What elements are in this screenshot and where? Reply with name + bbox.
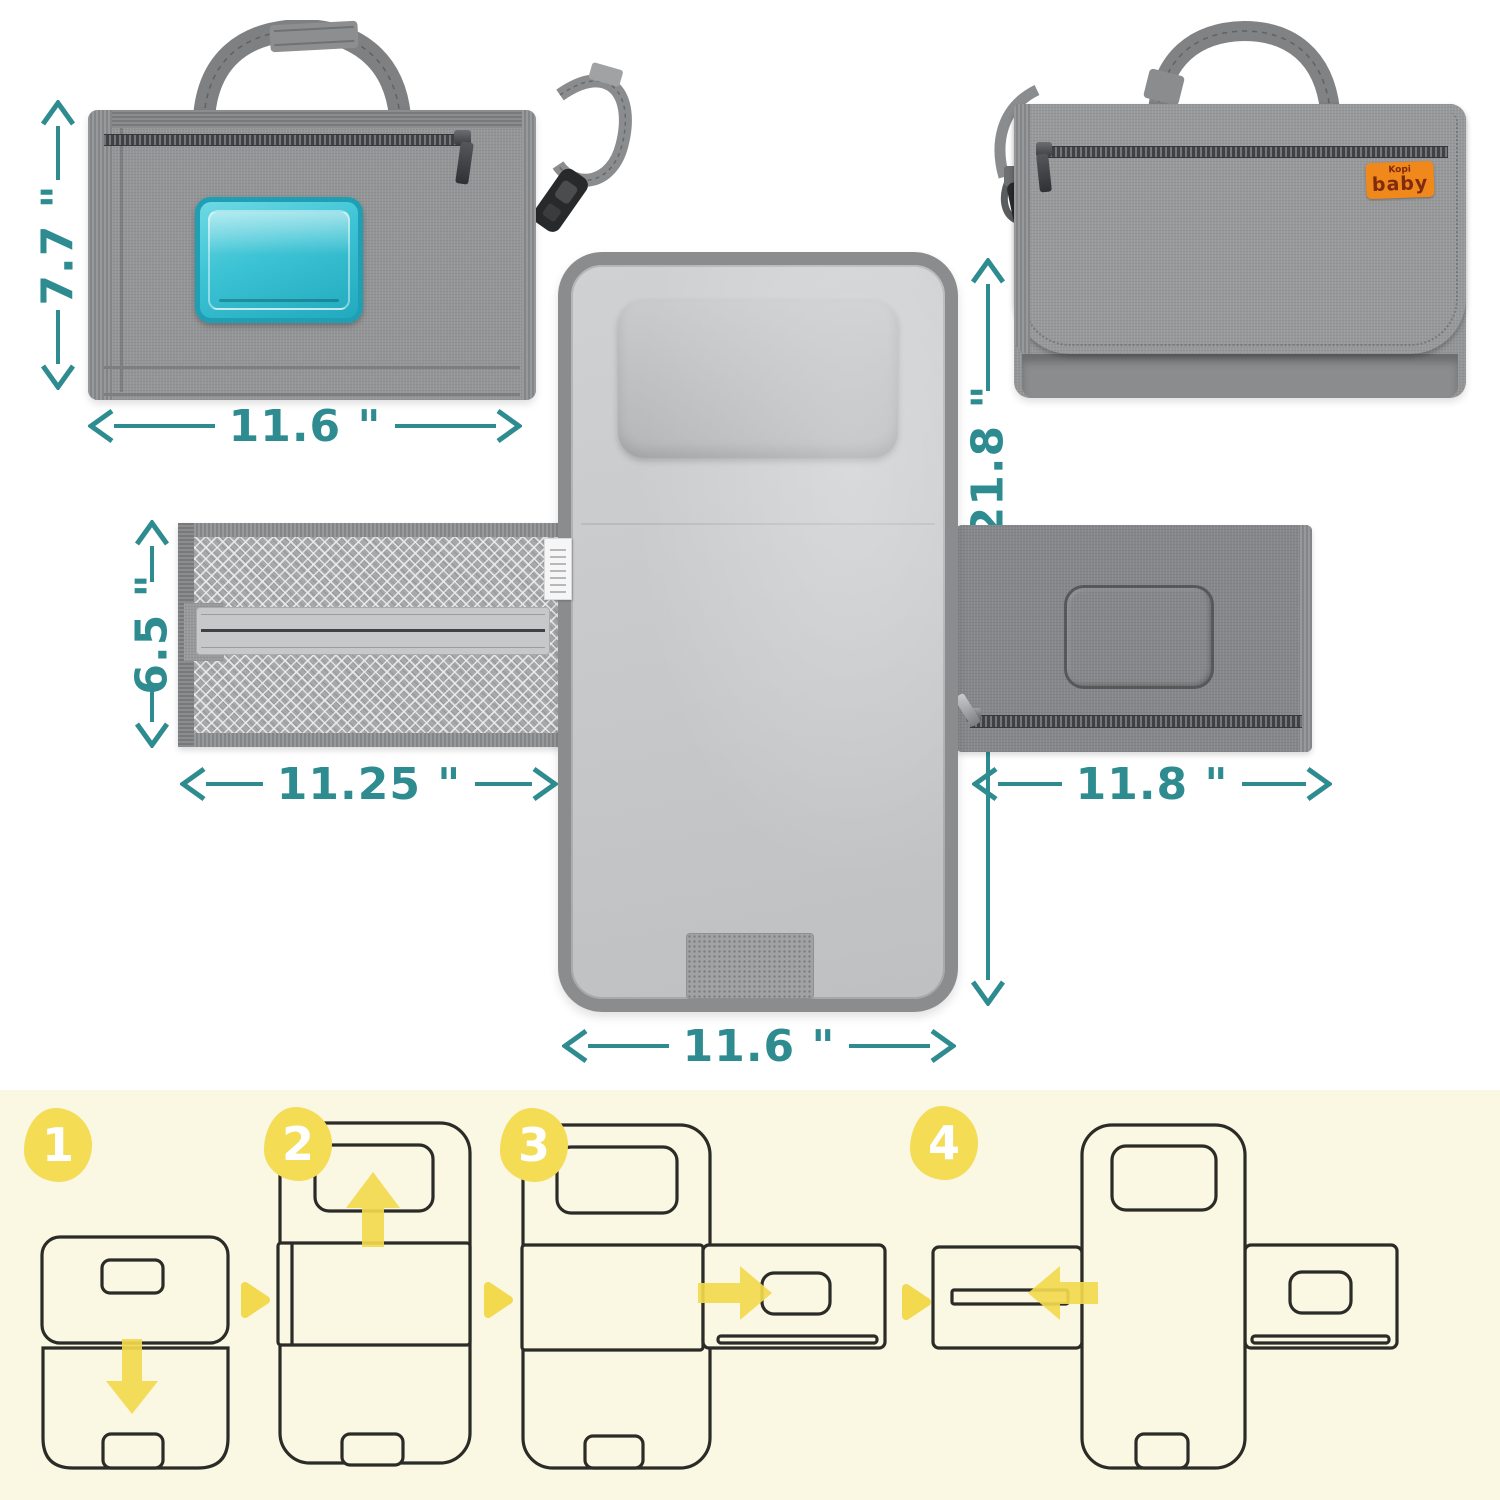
dimension-chevron-right-icon (532, 766, 558, 802)
front-bag-flap-seam (120, 128, 123, 392)
infographic-canvas: 7.7 " 11.6 " (0, 0, 1500, 1500)
dimension-label-box: 7.7 " (34, 180, 82, 310)
wipes-pocket-panel (956, 525, 1312, 752)
dimension-chevron-right-icon (496, 408, 522, 444)
dimension-mesh-height: 6.5 " (128, 520, 176, 748)
dimension-label-box: 6.5 " (128, 582, 176, 686)
back-bag-under-flap (1022, 354, 1458, 398)
changing-pad-open (558, 252, 958, 1012)
step-1-badge: 1 (24, 1108, 92, 1182)
pad-sheen (571, 265, 945, 999)
wipes-window (195, 197, 363, 323)
wipes-panel-window-emboss (1064, 585, 1214, 689)
front-bag-body (88, 110, 536, 400)
dimension-chevron-up-icon (134, 520, 170, 546)
back-bag-body: Kopi baby (1014, 104, 1466, 398)
dimension-chevron-right-icon (930, 1028, 956, 1064)
dimension-label-box: 21.8 " (964, 391, 1012, 531)
front-bag-zipper (104, 134, 466, 146)
dimension-chevron-up-icon (970, 258, 1006, 284)
brand-name-bottom: baby (1372, 174, 1429, 195)
care-label-tag (544, 538, 572, 600)
back-bag-left-binding (1014, 104, 1030, 354)
dimension-line (395, 424, 496, 428)
folding-steps-diagram (0, 1090, 1500, 1500)
wipes-panel-zipper (970, 715, 1302, 728)
dimension-chevron-left-icon (562, 1028, 588, 1064)
dimension-line (56, 310, 60, 364)
mesh-top-binding (178, 523, 562, 537)
dimension-mesh-width: 11.25 " (180, 762, 558, 806)
dimension-wipes-width: 11.8 " (972, 762, 1332, 806)
front-bag-top-binding (88, 110, 536, 128)
dimension-label: 6.5 " (127, 573, 178, 694)
dimension-line (475, 782, 532, 786)
mesh-pocket-panel (178, 523, 562, 747)
mesh-zipper-stitch (201, 647, 545, 648)
step-3-badge: 3 (500, 1108, 568, 1182)
dimension-pad-width: 11.6 " (562, 1024, 956, 1068)
dimension-folded-width: 11.6 " (88, 404, 522, 448)
dimension-line (588, 1044, 669, 1048)
dimension-line (849, 1044, 930, 1048)
dimension-chevron-left-icon (88, 408, 114, 444)
step-number: 3 (518, 1118, 550, 1172)
mesh-zipper-stitch (201, 614, 545, 615)
dimension-chevron-left-icon (972, 766, 998, 802)
dimension-chevron-down-icon (970, 980, 1006, 1006)
front-bag-left-binding (88, 110, 112, 400)
dimension-chevron-left-icon (180, 766, 206, 802)
wipes-lid-sheen (208, 210, 350, 310)
mesh-zipper-band (196, 607, 550, 655)
step-number: 2 (282, 1117, 314, 1171)
folding-steps-panel: 1 2 3 4 (0, 1090, 1500, 1500)
dimension-label: 7.7 " (33, 184, 84, 305)
front-bag-bottom-trim (104, 366, 520, 396)
front-bag-zipper-pull (455, 141, 474, 184)
front-bag-right-binding (522, 110, 536, 400)
dimension-line (986, 284, 990, 391)
dimension-label: 11.6 " (683, 1021, 836, 1072)
dimension-label: 11.8 " (1076, 759, 1229, 810)
step-4-badge: 4 (910, 1106, 978, 1180)
step-number: 1 (42, 1118, 74, 1172)
mesh-bottom-binding (178, 733, 562, 747)
mesh-zipper-teeth (201, 629, 545, 632)
dimension-chevron-up-icon (40, 100, 76, 126)
dimension-label: 11.25 " (277, 759, 461, 810)
back-bag-flap: Kopi baby (1014, 104, 1466, 354)
step-number: 4 (928, 1116, 960, 1170)
dimension-label: 11.6 " (229, 401, 382, 452)
dimension-label: 21.8 " (963, 385, 1014, 538)
step-2-badge: 2 (264, 1107, 332, 1181)
dimension-folded-height: 7.7 " (34, 100, 82, 390)
dimension-line (1242, 782, 1306, 786)
dimension-line (998, 782, 1062, 786)
dimension-line (114, 424, 215, 428)
back-bag-handle (1138, 20, 1348, 115)
dimension-chevron-right-icon (1306, 766, 1332, 802)
brand-logo: Kopi baby (1365, 161, 1434, 199)
dimension-chevron-down-icon (134, 722, 170, 748)
dimension-line (56, 126, 60, 180)
front-bag-handle (182, 20, 422, 120)
dimension-line (206, 782, 263, 786)
wipes-lid-split (219, 299, 339, 302)
back-bag-zipper (1040, 146, 1448, 158)
dimension-chevron-down-icon (40, 364, 76, 390)
